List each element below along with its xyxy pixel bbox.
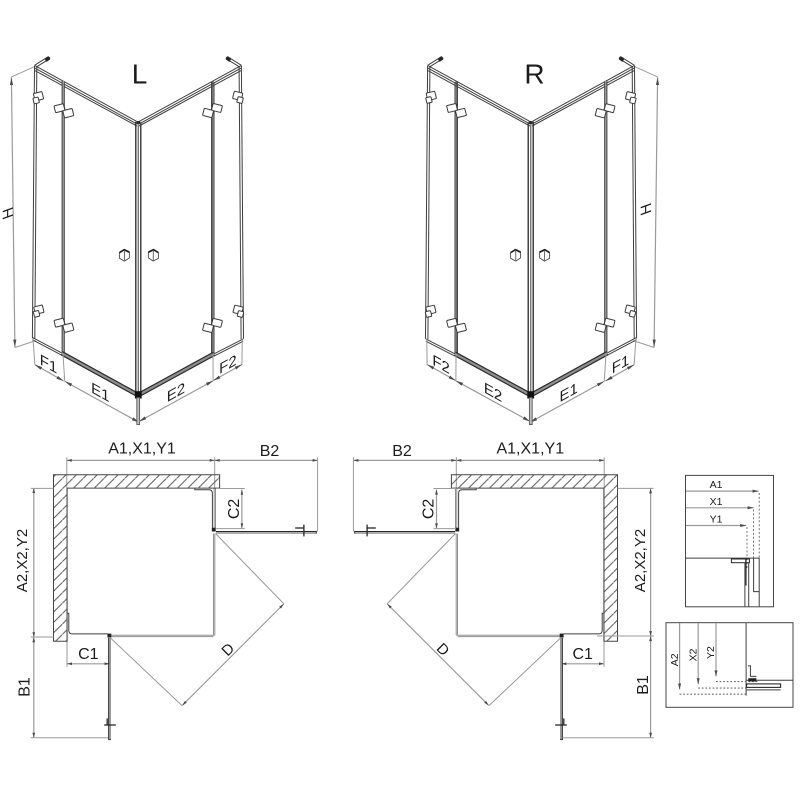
svg-text:A2,X2,Y2: A2,X2,Y2 [14, 529, 31, 592]
svg-text:B1: B1 [17, 677, 34, 697]
svg-text:A1,X1,Y1: A1,X1,Y1 [496, 441, 564, 458]
svg-text:A2,X2,Y2: A2,X2,Y2 [632, 529, 649, 592]
svg-text:B2: B2 [260, 443, 280, 460]
svg-text:X1: X1 [710, 496, 723, 508]
svg-text:Y1: Y1 [710, 514, 723, 526]
svg-text:R: R [524, 58, 544, 89]
svg-text:C1: C1 [78, 646, 99, 663]
svg-text:C2: C2 [226, 499, 243, 520]
svg-text:A2: A2 [669, 653, 681, 666]
svg-text:A1: A1 [710, 479, 723, 491]
svg-text:B1: B1 [635, 675, 652, 695]
svg-text:C1: C1 [572, 646, 593, 663]
svg-text:Y2: Y2 [705, 646, 717, 659]
svg-text:X2: X2 [687, 648, 699, 661]
svg-text:B2: B2 [392, 443, 412, 460]
svg-text:L: L [132, 58, 148, 89]
svg-text:C2: C2 [421, 499, 438, 520]
svg-text:A1,X1,Y1: A1,X1,Y1 [108, 441, 176, 458]
